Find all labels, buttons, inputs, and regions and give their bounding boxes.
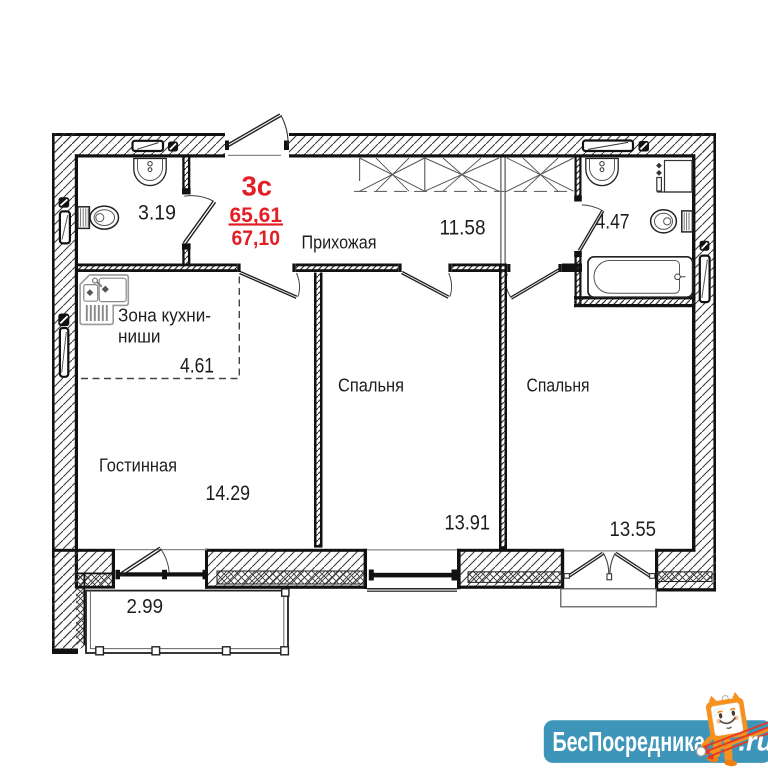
svg-text:67,10: 67,10 <box>232 226 281 250</box>
svg-text:ниши: ниши <box>118 327 161 347</box>
svg-text:Зона кухни-: Зона кухни- <box>118 306 211 326</box>
svg-text:13.55: 13.55 <box>610 518 657 541</box>
svg-text:Спальня: Спальня <box>527 376 590 396</box>
svg-text:4.61: 4.61 <box>180 355 214 378</box>
svg-text:3с: 3с <box>242 171 273 202</box>
svg-text:Спальня: Спальня <box>338 376 404 396</box>
svg-text:14.29: 14.29 <box>206 482 251 505</box>
svg-text:2.99: 2.99 <box>127 595 164 618</box>
svg-text:БесПосредника: БесПосредника <box>553 726 706 757</box>
svg-text:3.19: 3.19 <box>138 202 176 225</box>
svg-text:Гостинная: Гостинная <box>99 456 177 476</box>
svg-text:4.47: 4.47 <box>596 211 630 234</box>
svg-text:Прихожая: Прихожая <box>302 232 377 252</box>
svg-text:13.91: 13.91 <box>445 512 491 535</box>
svg-text:11.58: 11.58 <box>440 217 486 240</box>
svg-text:.ru: .ru <box>739 727 768 757</box>
